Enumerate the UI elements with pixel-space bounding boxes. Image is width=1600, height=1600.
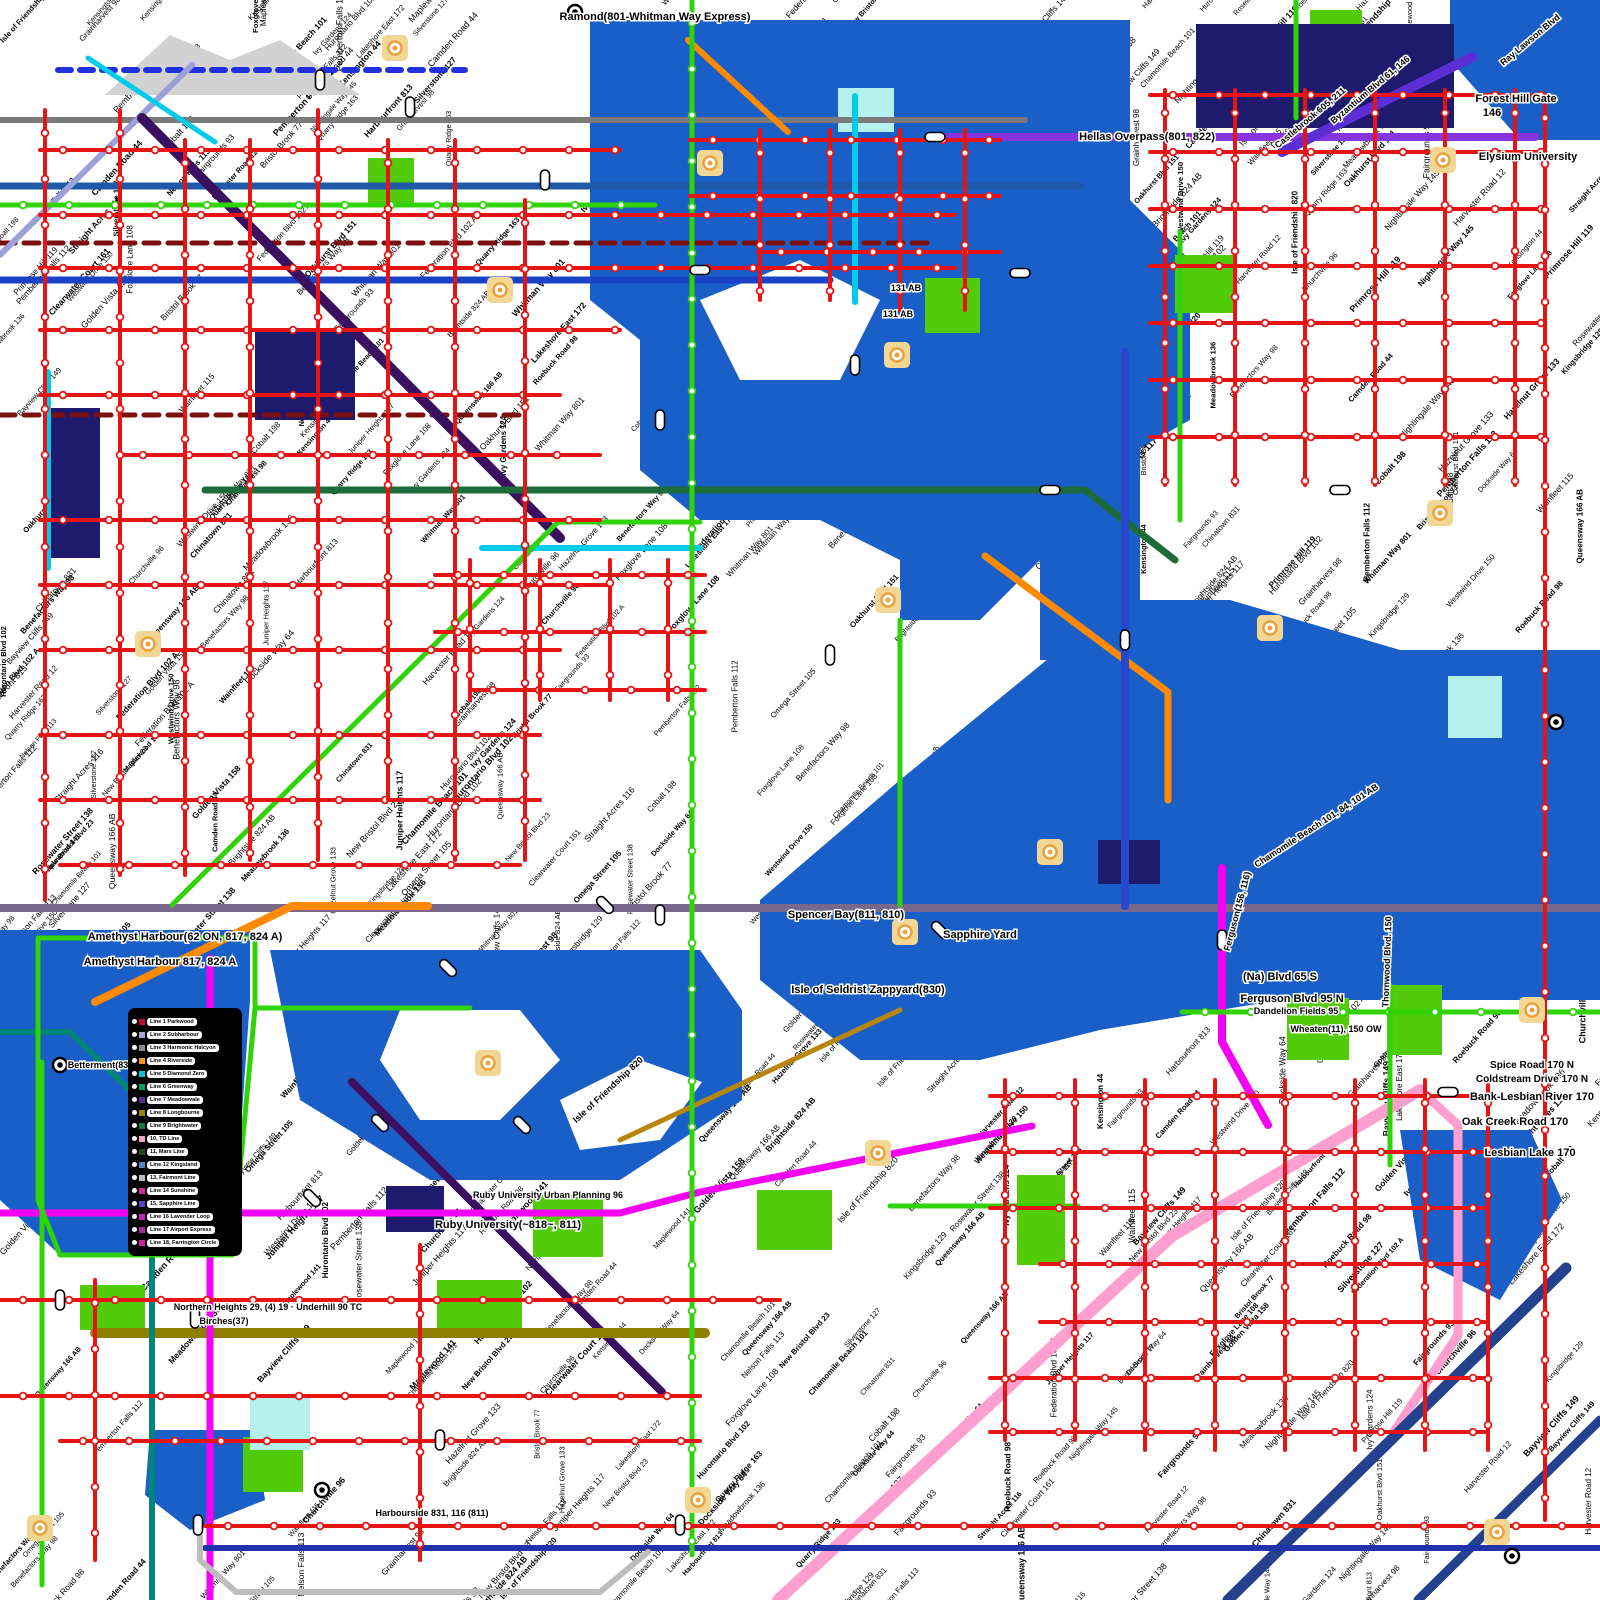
station-dot: [317, 1523, 324, 1530]
station-dot: [1492, 206, 1499, 213]
station-dot: [848, 137, 855, 144]
station-dot: [1232, 294, 1239, 301]
legend-color-chip: [139, 1227, 145, 1233]
station-dot: [198, 327, 205, 334]
station-dot: [1162, 386, 1169, 393]
station-dot: [1053, 1523, 1060, 1530]
street-label: Meadowbrook 136: [1237, 1393, 1290, 1451]
station-dot: [1442, 432, 1449, 439]
street-label: Federation Blvd 102 A: [255, 200, 313, 263]
station-dot: [1072, 1146, 1079, 1153]
station-dot: [315, 498, 322, 505]
station-dot: [1148, 1093, 1155, 1100]
station-dot: [1194, 1375, 1201, 1382]
station-dot: [1372, 110, 1379, 117]
station-dot: [1010, 1093, 1017, 1100]
station-dot: [1302, 248, 1309, 255]
station-dot: [152, 582, 159, 589]
station-dot: [1002, 1284, 1009, 1291]
street-label: Benefactors Way 98: [19, 573, 77, 636]
station-dot: [1232, 340, 1239, 347]
station-dot: [315, 682, 322, 689]
station-dot: [1400, 92, 1407, 99]
park-area: [1017, 1175, 1065, 1265]
park-area: [1387, 985, 1442, 1055]
district-block: [255, 332, 355, 420]
station-dot: [42, 360, 49, 367]
station-dot: [385, 620, 392, 627]
station-dot: [342, 202, 349, 209]
station-dot: [1542, 851, 1549, 858]
station-dot: [1072, 1284, 1079, 1291]
station-dot: [1142, 1192, 1149, 1199]
station-dot: [1162, 340, 1169, 347]
interchange-pill: [851, 355, 860, 375]
interchange-pill: [436, 1430, 445, 1450]
station-dot: [66, 1393, 73, 1400]
station-dot: [526, 1393, 533, 1400]
station-dot: [182, 758, 189, 765]
station-dot: [60, 797, 67, 804]
station-dot: [152, 732, 159, 739]
station-dot: [1170, 434, 1177, 441]
street-label: Pemberton Falls 112: [1362, 502, 1371, 581]
station-label: Amethyst Harbour 817, 824 A: [84, 956, 236, 968]
station-dot: [1432, 1009, 1439, 1016]
street-label: Benefactors Way 98: [1154, 1494, 1208, 1553]
street-label: Fairgrounds 93: [1421, 119, 1431, 178]
station-dot: [117, 360, 124, 367]
legend-color-chip: [139, 1175, 145, 1181]
station-dot: [678, 1438, 685, 1445]
station-dot: [428, 582, 435, 589]
station-dot: [428, 147, 435, 154]
station-dot: [1512, 386, 1519, 393]
interchange-pill: [656, 410, 665, 430]
station-dot: [522, 220, 529, 227]
station-dot: [452, 482, 459, 489]
street-label: Chinatown 831: [335, 741, 375, 784]
street-label: Roebuck Road 98: [1513, 579, 1565, 635]
station-dot: [182, 436, 189, 443]
yard-icon: [886, 598, 891, 603]
station-dot: [290, 517, 297, 524]
station-dot: [522, 450, 529, 457]
yard-icon: [708, 161, 713, 166]
street-label: Queensway 166 AB: [107, 813, 117, 889]
station-dot: [1302, 294, 1309, 301]
station-dot: [1372, 478, 1379, 485]
street-label: Clearwater Court 161: [527, 827, 583, 887]
legend-line-label: Line 6 Greenway: [147, 1083, 197, 1091]
station-dot: [152, 265, 159, 272]
street-label: New Bristol Blvd 23: [777, 1311, 832, 1370]
station-dot: [1485, 1238, 1492, 1245]
station-dot: [827, 196, 834, 203]
station-dot: [522, 358, 529, 365]
station-dot: [1421, 1523, 1428, 1530]
station-dot: [290, 647, 297, 654]
station-dot: [1282, 1330, 1289, 1337]
station-dot: [1308, 377, 1315, 384]
station-dot: [324, 452, 331, 459]
station-dot: [1542, 575, 1549, 582]
station-dot: [1162, 294, 1169, 301]
station-dot: [60, 212, 67, 219]
station-dot: [1102, 1149, 1109, 1156]
station-dot: [1072, 1422, 1079, 1429]
station-dot: [1056, 1093, 1063, 1100]
station-dot: [1232, 386, 1239, 393]
station-dot: [1262, 434, 1269, 441]
station-dot: [689, 434, 696, 441]
shallow-water-patch: [1448, 676, 1502, 738]
station-dot: [796, 212, 803, 219]
station-dot: [1372, 202, 1379, 209]
station-dot: [1467, 1523, 1474, 1530]
station-dot: [1170, 377, 1177, 384]
station-dot: [417, 1357, 424, 1364]
park-area: [437, 1280, 522, 1330]
legend-line-label: Line 4 Riverside: [147, 1057, 195, 1065]
station-dot: [547, 1523, 554, 1530]
legend-color-chip: [139, 1123, 145, 1129]
legend-row: Line 8 Longbourne: [132, 1106, 238, 1119]
station-dot: [1216, 434, 1223, 441]
station-dot: [827, 242, 834, 249]
station-dot: [689, 940, 696, 947]
station-dot: [1485, 1422, 1492, 1429]
station-dot: [1422, 1284, 1429, 1291]
station-dot: [689, 986, 696, 993]
station-dot: [106, 732, 113, 739]
station-dot: [1512, 202, 1519, 209]
station-dot: [1485, 1192, 1492, 1199]
yard-icon: [696, 1498, 701, 1503]
station-dot: [522, 588, 529, 595]
station-dot: [1474, 1319, 1481, 1326]
street-label: Foxglove Lane 108: [1593, 1028, 1600, 1088]
station-dot: [247, 574, 254, 581]
station-dot: [986, 137, 993, 144]
station-dot: [480, 202, 487, 209]
legend-color-chip: [139, 1149, 145, 1155]
station-dot: [1170, 206, 1177, 213]
station-dot: [1212, 1100, 1219, 1107]
station-dot: [1442, 386, 1449, 393]
station-dot: [198, 647, 205, 654]
station-dot: [757, 242, 764, 249]
station-dot: [117, 636, 124, 643]
station-dot: [1400, 206, 1407, 213]
station-dot: [1072, 1330, 1079, 1337]
station-dot: [689, 1308, 696, 1315]
station-dot: [1170, 320, 1177, 327]
station-dot: [112, 1393, 119, 1400]
station-dot: [1212, 1422, 1219, 1429]
station-dot: [1354, 263, 1361, 270]
station-dot: [1354, 377, 1361, 384]
street-label: Bristol Brook 77: [534, 1409, 541, 1459]
station-dot: [182, 298, 189, 305]
street-label: Roebuck Road 98: [1451, 1008, 1504, 1065]
station-dot: [402, 1438, 409, 1445]
station-dot: [158, 1393, 165, 1400]
station-dot: [480, 1297, 487, 1304]
station-dot: [1194, 1093, 1201, 1100]
legend-bullet-icon: [132, 1019, 137, 1024]
station-dot: [467, 626, 474, 633]
interchange-pill: [826, 645, 835, 665]
station-dot: [1513, 1523, 1520, 1530]
station-dot: [1262, 149, 1269, 156]
station-label: Birches(37): [199, 1316, 248, 1326]
district-block: [48, 408, 100, 558]
station-dot: [80, 1438, 87, 1445]
station-dot: [474, 212, 481, 219]
legend-row: Line 2 Subharbour: [132, 1028, 238, 1041]
yard-icon: [1495, 1530, 1500, 1535]
station-dot: [117, 728, 124, 735]
station-dot: [152, 212, 159, 219]
station-dot: [1542, 989, 1549, 996]
legend-bullet-icon: [132, 1071, 137, 1076]
station-dot: [674, 687, 681, 694]
station-dot: [417, 1311, 424, 1318]
station-dot: [1072, 1192, 1079, 1199]
station-dot: [1282, 1238, 1289, 1245]
station-dot: [60, 147, 67, 154]
station-dot: [827, 150, 834, 157]
station-dot: [60, 265, 67, 272]
station-dot: [250, 1393, 257, 1400]
station-dot: [1194, 1205, 1201, 1212]
station-dot: [1382, 1319, 1389, 1326]
station-dot: [172, 1438, 179, 1445]
station-dot: [474, 265, 481, 272]
station-dot: [802, 137, 809, 144]
station-dot: [1512, 432, 1519, 439]
interchange-pill: [595, 895, 616, 916]
station-dot: [315, 406, 322, 413]
station-dot: [1542, 759, 1549, 766]
station-dot: [607, 672, 614, 679]
station-dot: [897, 150, 904, 157]
station-dot: [689, 1170, 696, 1177]
station-dot: [452, 298, 459, 305]
station-dot: [1474, 1261, 1481, 1268]
station-dot: [409, 1523, 416, 1530]
station-dot: [1072, 1238, 1079, 1245]
water-body: [1450, 0, 1600, 140]
station-dot: [1512, 294, 1519, 301]
station-dot: [290, 582, 297, 589]
station-dot: [1056, 1149, 1063, 1156]
yard-icon: [1438, 511, 1443, 516]
station-dot: [385, 344, 392, 351]
station-dot: [452, 620, 459, 627]
street-label: Kingsbridge 129: [1367, 591, 1412, 640]
station-dot: [452, 252, 459, 259]
station-dot: [710, 1297, 717, 1304]
station-dot: [1142, 1330, 1149, 1337]
station-dot: [385, 574, 392, 581]
station-dot: [428, 517, 435, 524]
station-dot: [448, 1438, 455, 1445]
station-dot: [1354, 149, 1361, 156]
station-dot: [710, 137, 717, 144]
station-dot: [612, 327, 619, 334]
legend-bullet-icon: [132, 1032, 137, 1037]
station-dot: [182, 620, 189, 627]
station-dot: [1102, 1093, 1109, 1100]
station-dot: [1372, 432, 1379, 439]
legend-row: Line 18, Farrington Circle: [132, 1236, 238, 1249]
station-dot: [537, 626, 544, 633]
station-dot: [1142, 1100, 1149, 1107]
station-dot: [689, 342, 696, 349]
station-dot: [117, 314, 124, 321]
station-dot: [1442, 110, 1449, 117]
station-dot: [1372, 386, 1379, 393]
interchange-pill: [56, 1290, 65, 1310]
station-dot: [1072, 1100, 1079, 1107]
station-dot: [66, 202, 73, 209]
station-dot: [336, 647, 343, 654]
station-dot: [290, 797, 297, 804]
legend-line-label: Line 18, Farrington Circle: [147, 1239, 219, 1247]
street-label: Chinatown 831: [858, 1355, 897, 1397]
legend-line-label: Line 1 Parkwood: [147, 1018, 197, 1026]
legend-row: Line 6 Greenway: [132, 1080, 238, 1093]
station-dot: [198, 392, 205, 399]
station-dot: [388, 1393, 395, 1400]
street-label: Wainfleet 115: [1534, 470, 1575, 514]
station-dot: [1378, 1429, 1385, 1436]
station-dot: [689, 1400, 696, 1407]
station-dot: [1302, 432, 1309, 439]
station-dot: [1212, 1192, 1219, 1199]
station-dot: [428, 797, 435, 804]
street-label: Grainharvest 98: [224, 459, 269, 507]
station-dot: [117, 682, 124, 689]
legend-bullet-icon: [132, 1188, 137, 1193]
station-dot: [731, 1523, 738, 1530]
street-label: New Bristol Blvd 23: [460, 1332, 516, 1392]
station-dot: [385, 298, 392, 305]
station-dot: [296, 1393, 303, 1400]
station-dot: [117, 406, 124, 413]
station-dot: [1542, 1219, 1549, 1226]
station-dot: [152, 392, 159, 399]
station-dot: [1352, 1330, 1359, 1337]
station-dot: [152, 517, 159, 524]
station-dot: [1262, 263, 1269, 270]
station-dot: [452, 528, 459, 535]
legend-bullet-icon: [132, 1201, 137, 1206]
station-dot: [336, 265, 343, 272]
station-dot: [689, 526, 696, 533]
station-label: 131 AB: [883, 309, 914, 319]
station-dot: [152, 327, 159, 334]
station-dot: [888, 212, 895, 219]
street-label: Straight Acres 116: [1040, 1590, 1087, 1600]
station-dot: [315, 268, 322, 275]
station-dot: [586, 1438, 593, 1445]
station-dot: [106, 265, 113, 272]
station-dot: [106, 797, 113, 804]
legend-bullet-icon: [132, 1162, 137, 1167]
legend-row: Line 1 Parkwood: [132, 1015, 238, 1028]
station-dot: [888, 265, 895, 272]
station-dot: [1262, 92, 1269, 99]
station-dot: [572, 202, 579, 209]
station-dot: [1354, 206, 1361, 213]
station-label: Coldstream Drive 170 N: [1476, 1074, 1588, 1085]
street-label: Whitman Way 801: [510, 257, 567, 319]
station-dot: [452, 712, 459, 719]
station-dot: [689, 1262, 696, 1269]
street-label: Pemberton Falls 112: [0, 742, 39, 806]
station-dot: [1428, 1261, 1435, 1268]
yard-icon: [903, 930, 908, 935]
station-dot: [1282, 1192, 1289, 1199]
station-dot: [1142, 1422, 1149, 1429]
station-dot: [796, 265, 803, 272]
station-dot: [42, 774, 49, 781]
station-dot: [1262, 377, 1269, 384]
street-label: Grainharvest 98: [1355, 1563, 1402, 1600]
legend-bullet-icon: [132, 1149, 137, 1154]
station-dot: [566, 212, 573, 219]
station-dot: [198, 582, 205, 589]
station-dot: [315, 590, 322, 597]
station-dot: [916, 249, 923, 256]
station-dot: [1375, 1523, 1382, 1530]
station-dot: [1194, 1149, 1201, 1156]
street-label: Pemberton Falls 112: [91, 1399, 145, 1458]
legend-color-chip: [139, 1097, 145, 1103]
station-dot: [710, 193, 717, 200]
station-dot: [290, 147, 297, 154]
station-dot: [1010, 1375, 1017, 1382]
street-label: Meadowbrook 136: [0, 312, 27, 362]
station-dot: [1372, 340, 1379, 347]
station-dot: [1428, 1319, 1435, 1326]
station-dot: [42, 728, 49, 735]
station-dot: [1282, 1100, 1289, 1107]
station-dot: [290, 327, 297, 334]
station-dot: [639, 629, 646, 636]
station-dot: [158, 1297, 165, 1304]
station-dot: [685, 1523, 692, 1530]
legend-box: Line 1 ParkwoodLine 2 SubharbourLine 3 H…: [128, 1008, 242, 1256]
station-dot: [1542, 805, 1549, 812]
station-dot: [1378, 1149, 1385, 1156]
station-dot: [474, 797, 481, 804]
station-dot: [1010, 1149, 1017, 1156]
street-label: Isle of Friendship 820: [1291, 190, 1300, 273]
station-dot: [490, 687, 497, 694]
station-dot: [1352, 1146, 1359, 1153]
station-dot: [1492, 263, 1499, 270]
station-dot: [342, 1393, 349, 1400]
legend-color-chip: [139, 1084, 145, 1090]
street-label: Nelson Falls 113: [296, 1533, 306, 1597]
station-dot: [1240, 1149, 1247, 1156]
station-label: (Na) Blvd 65 S: [1243, 971, 1317, 983]
station-dot: [1216, 206, 1223, 213]
